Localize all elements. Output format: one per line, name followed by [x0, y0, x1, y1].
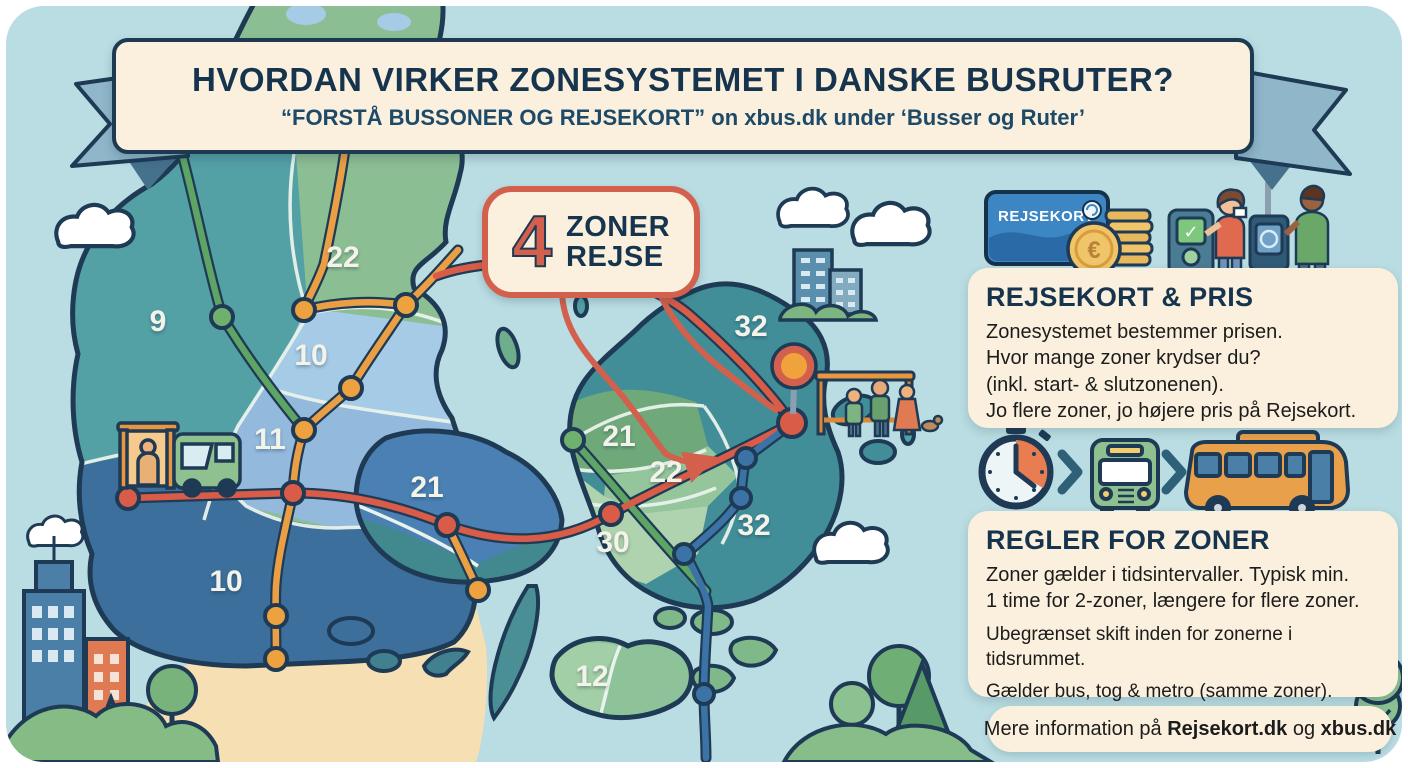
zone-label: 32 — [737, 509, 770, 543]
rejsekort-dk-link: Rejsekort.dk — [1167, 718, 1287, 741]
zone-trip-callout: 4 ZONER REJSE — [482, 186, 700, 298]
pris-line: Zonesystemet bestemmer prisen. — [986, 319, 1380, 345]
bus-side-icon — [1186, 432, 1348, 519]
zone-count: 4 — [512, 206, 552, 278]
chevron-right-icon — [1166, 454, 1182, 490]
zone-label: 21 — [410, 471, 443, 505]
zone-label: 11 — [254, 423, 286, 457]
city-buildings-illustration — [780, 250, 876, 320]
zone-label: 22 — [326, 241, 359, 275]
rejsekort-scene: REJSEKORT € ✓ — [986, 182, 1328, 276]
zone-label: 32 — [734, 310, 767, 344]
zone-label: 30 — [596, 526, 629, 560]
zone-label: 21 — [602, 420, 635, 454]
pris-line: Jo flere zoner, jo højere pris på Rejsek… — [986, 398, 1380, 424]
title-banner: HVORDAN VIRKER ZONESYSTEMET I DANSKE BUS… — [112, 38, 1254, 154]
zone-label: 10 — [294, 339, 327, 373]
more-info-prefix: Mere information på — [984, 718, 1167, 741]
zone-label: 9 — [150, 305, 167, 339]
zone-label: 10 — [209, 565, 242, 599]
more-info-bar: Mere information på Rejsekort.dk og xbus… — [988, 706, 1392, 752]
bus-front-icon — [1092, 440, 1158, 515]
euro-symbol: € — [1087, 237, 1100, 264]
zone-time-icon-row — [982, 424, 1348, 519]
more-info-middle: og — [1287, 718, 1320, 741]
regler-line: Ubegrænset skift inden for zonerne i tid… — [986, 622, 1380, 672]
card-reader-right — [1250, 182, 1288, 276]
zone-trip-label: ZONER REJSE — [566, 212, 670, 273]
regler-line: Zoner gælder i tidsintervaller. Typisk m… — [986, 562, 1380, 588]
regler-panel-heading: REGLER FOR ZONER — [986, 525, 1380, 556]
pris-panel-heading: REJSEKORT & PRIS — [986, 282, 1380, 313]
regler-line: Gælder bus, tog & metro (samme zoner). — [986, 679, 1380, 704]
zone-rules-panel: REGLER FOR ZONER Zoner gælder i tidsinte… — [968, 511, 1398, 697]
rejsekort-pris-panel: REJSEKORT & PRIS Zonesystemet bestemmer … — [968, 268, 1398, 428]
stopwatch-icon — [982, 424, 1052, 506]
center-trees-illustration — [784, 646, 991, 762]
page-subtitle: “FORSTÅ BUSSONER OG REJSEKORT” on xbus.d… — [281, 105, 1085, 131]
page-title: HVORDAN VIRKER ZONESYSTEMET I DANSKE BUS… — [192, 61, 1174, 99]
regler-line: 1 time for 2-zoner, længere for flere zo… — [986, 588, 1380, 614]
zone-label: 22 — [649, 456, 682, 490]
waiting-people — [846, 380, 942, 436]
card-reader-left: ✓ — [1169, 210, 1213, 274]
infographic-canvas: REJSEKORT € ✓ — [6, 6, 1402, 762]
check-icon: ✓ — [1183, 222, 1198, 242]
green-bus-illustration — [174, 434, 240, 496]
card-brand-label: REJSEKORT — [998, 208, 1094, 225]
man-figure — [1286, 186, 1328, 276]
pris-line: Hvor mange zoner krydser du? — [986, 345, 1380, 371]
zone-label: 12 — [575, 660, 608, 694]
xbus-dk-link: xbus.dk — [1321, 718, 1397, 741]
chevron-right-icon — [1062, 454, 1078, 490]
bus-shelter-illustration — [118, 423, 240, 496]
pris-line: (inkl. start- & slutzonenen). — [986, 372, 1380, 398]
